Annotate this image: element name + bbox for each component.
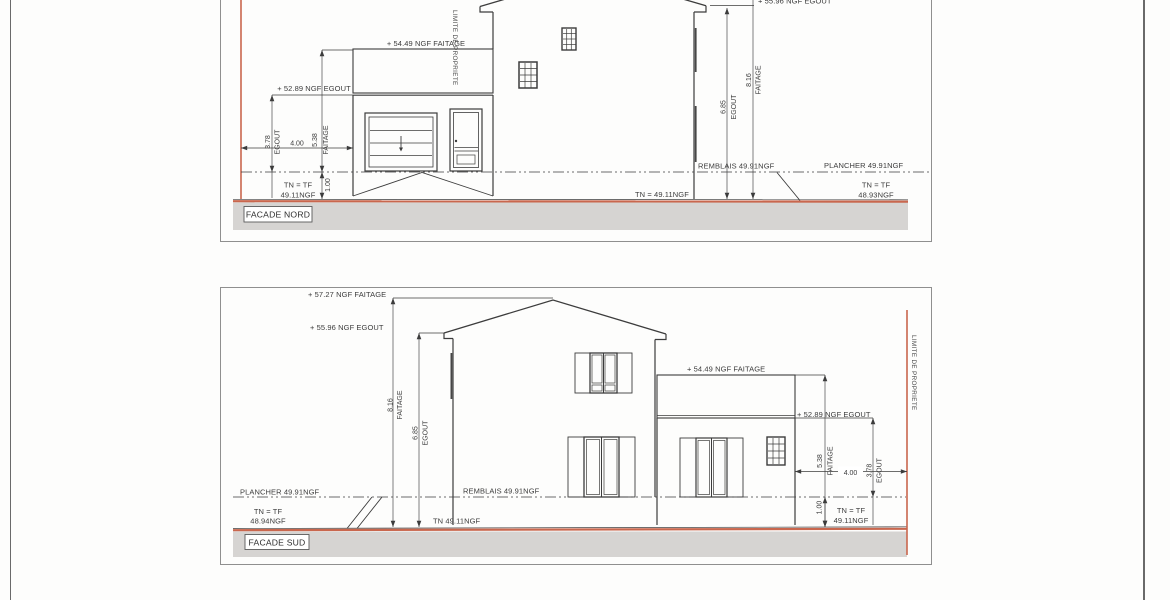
- title-sud: FACADE SUD: [245, 535, 309, 550]
- window-lower: [519, 62, 537, 88]
- dim-538: 5.38: [817, 454, 824, 468]
- dims-right: 5.38 FAITAGE 1.00 3.78 EGOUT 4.00 + 54.4…: [687, 365, 907, 528]
- label-tn-mid: TN = 49.11NGF: [635, 190, 689, 199]
- driveway-ramp-v: [353, 173, 493, 197]
- label-tn-left-2: 49.11NGF: [281, 191, 316, 200]
- terrain-red-line: [233, 529, 907, 530]
- page-edge-left: [10, 0, 11, 600]
- level-faitage-house: + 57.27 NGF FAITAGE: [308, 290, 386, 299]
- dim-538-word: FAITAGE: [828, 446, 835, 475]
- dim-100: 1.00: [817, 501, 824, 515]
- label-plancher: PLANCHER 49.91NGF: [240, 488, 320, 497]
- page-edge-right: [1143, 0, 1145, 600]
- garage-roof-hatch: [657, 375, 795, 418]
- garage-window: [767, 437, 785, 465]
- dim-685: 6.85: [413, 426, 420, 440]
- dim-816-word: FAITAGE: [397, 390, 404, 419]
- label-tn-left-1: TN = TF: [284, 181, 313, 190]
- garage-nord: [353, 49, 493, 196]
- dim-378-word: EGOUT: [275, 129, 282, 155]
- label-tn-right-2: 49.11NGF: [834, 516, 869, 525]
- garage-door: [365, 113, 437, 171]
- shutter-edge-tick: [695, 106, 697, 162]
- label-tn-left-1: TN = TF: [254, 507, 283, 516]
- label-tn-left-2: 48.94NGF: [250, 517, 286, 526]
- dim-685-word: EGOUT: [423, 420, 430, 446]
- dim-538-word: FAITAGE: [323, 125, 330, 154]
- shutter-edge-tick: [451, 353, 453, 399]
- facade-nord-drawing: LIMITE DE PROPRIETE: [220, 0, 932, 242]
- facade-nord-panel: LIMITE DE PROPRIETE: [220, 0, 932, 242]
- level-egout-garage: + 52.89 NGF EGOUT: [797, 410, 871, 419]
- label-tn-mid: TN 49.11NGF: [433, 517, 481, 526]
- title-nord: FACADE NORD: [244, 207, 312, 223]
- facade-sud-panel: LIMITE DE PROPRIETE: [220, 287, 932, 565]
- window-upper: [562, 28, 576, 50]
- label-remblais: REMBLAIS 49.91NGF: [463, 487, 540, 496]
- level-egout-house-clipped: + 55.96 NGF EGOUT: [758, 0, 832, 6]
- dim-378: 3.78: [867, 464, 874, 478]
- door-knob: [455, 140, 457, 142]
- facade-sud-drawing: LIMITE DE PROPRIETE: [220, 287, 932, 565]
- terrain-strip: [233, 532, 907, 558]
- dim-400: 4.00: [290, 141, 304, 148]
- level-egout-garage: + 52.89 NGF EGOUT: [277, 84, 351, 93]
- dim-685: 6.85: [721, 100, 728, 114]
- garage-french-door: [680, 438, 743, 497]
- garage-roof-hatch: [353, 49, 493, 93]
- garage-sud: [657, 375, 795, 525]
- dim-538: 5.38: [312, 133, 319, 147]
- dim-685-word: EGOUT: [731, 94, 738, 120]
- window-upper-shuttered: [575, 353, 632, 393]
- dim-400: 4.00: [844, 470, 858, 477]
- dim-816-word: FAITAGE: [756, 65, 763, 94]
- house-roof: [480, 0, 706, 7]
- level-egout-house: + 55.96 NGF EGOUT: [310, 323, 384, 332]
- property-line-label: LIMITE DE PROPRIETE: [910, 335, 917, 411]
- remblais-ramp: [777, 173, 800, 201]
- entry-door: [450, 109, 482, 171]
- dim-378-word: EGOUT: [877, 457, 884, 483]
- shutter-edge-tick: [695, 28, 697, 72]
- property-line-right: LIMITE DE PROPRIETE: [907, 310, 917, 555]
- facade-sud-title: FACADE SUD: [249, 538, 306, 548]
- ground-nord: [233, 199, 908, 230]
- level-faitage-garage: + 54.49 NGF FAITAGE: [687, 365, 765, 374]
- scanned-plan-page: { "colors": { "ink": "#3c3c3c", "red": "…: [0, 0, 1170, 600]
- label-remblais: REMBLAIS 49.91NGF: [698, 162, 775, 171]
- dim-100: 1.00: [325, 178, 332, 192]
- label-tn-right-2: 48.93NGF: [858, 191, 894, 200]
- access-ramp: [347, 497, 382, 529]
- facade-nord-title: FACADE NORD: [246, 210, 310, 220]
- french-door-shuttered: [568, 437, 635, 497]
- property-line-left: LIMITE DE PROPRIETE: [241, 0, 458, 199]
- label-tn-right-1: TN = TF: [862, 181, 891, 190]
- label-plancher: PLANCHER 49.91NGF: [824, 161, 904, 170]
- ground-sud: [233, 497, 907, 557]
- dim-378: 3.78: [265, 135, 272, 149]
- dim-816: 8.16: [388, 398, 395, 412]
- house-nord: [480, 0, 706, 199]
- terrain-strip: [233, 203, 908, 231]
- dim-816: 8.16: [746, 73, 753, 87]
- label-tn-right-1: TN = TF: [837, 506, 866, 515]
- level-faitage-garage: + 54.49 NGF FAITAGE: [387, 39, 465, 48]
- house-roof: [444, 300, 666, 334]
